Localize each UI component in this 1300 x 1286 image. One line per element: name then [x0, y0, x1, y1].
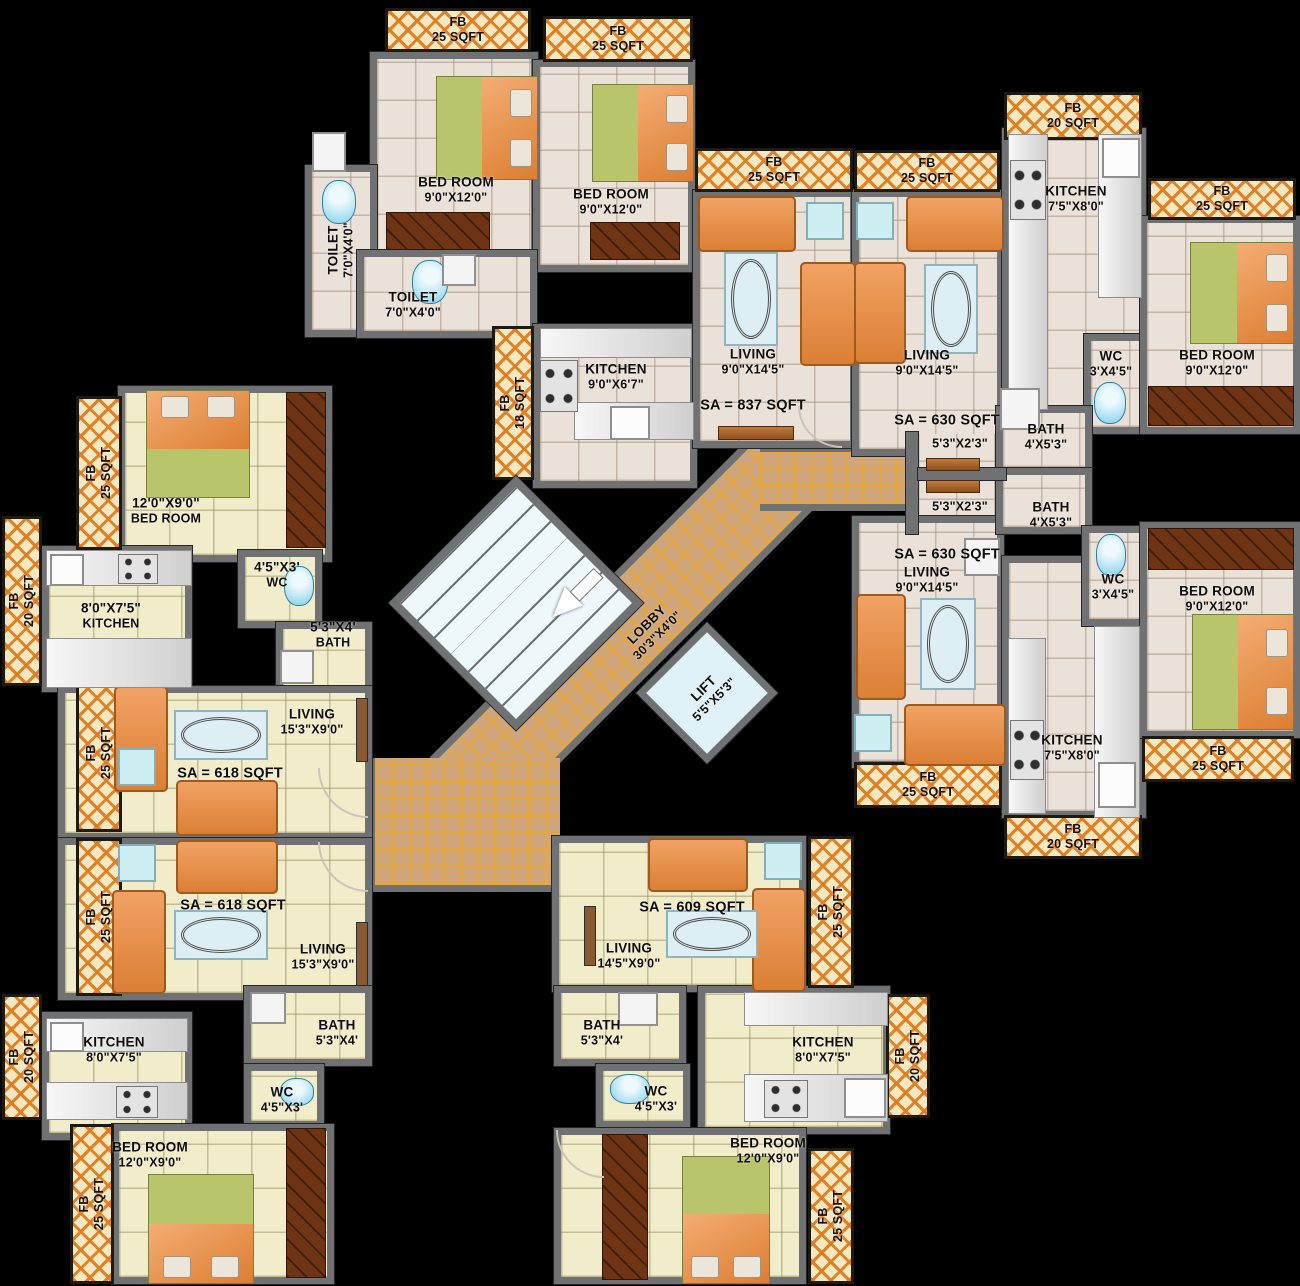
gas-stove-icon [1010, 720, 1044, 780]
label-sa-630-lower: SA = 630 SQFT [894, 546, 1000, 563]
label-passage-lower: 5'3"X2'3" [932, 500, 988, 515]
oval-rug [920, 598, 976, 690]
wardrobe [1148, 386, 1294, 426]
label-fb: FB25 SQFT [84, 727, 115, 779]
pillow [207, 396, 235, 418]
pillow [733, 1256, 761, 1278]
room-name: BATH [1032, 500, 1069, 515]
label-wc-d: WC4'5"X3' [635, 1084, 677, 1115]
label-fb: FB25 SQFT [432, 15, 484, 46]
label-fb: FB25 SQFT [816, 886, 847, 938]
pillow [1266, 629, 1288, 657]
side-table [118, 844, 156, 882]
fb-label: FB [893, 1047, 907, 1064]
room-dims: 8'0"X7'5" [792, 1051, 853, 1066]
passage-dims: 5'3"X2'3" [932, 500, 988, 514]
fb-label: FB [7, 1048, 21, 1065]
fb-label: FB [1213, 184, 1230, 198]
sa-value: SA = 618 SQFT [177, 765, 283, 781]
label-sa-618-lower: SA = 618 SQFT [180, 897, 286, 914]
double-bed [436, 76, 538, 180]
wash-basin-icon [280, 650, 314, 684]
sofa [906, 196, 1004, 252]
sofa [904, 704, 1006, 766]
label-kitchen-c: KITCHEN7'5"X8'0" [1041, 733, 1102, 764]
rug-oval [731, 259, 771, 339]
label-kitchen-d: KITCHEN8'0"X7'5" [792, 1035, 853, 1066]
room-dims: 7'0"X4'0" [385, 306, 441, 321]
room-dims: 9'0"X12'0" [573, 203, 649, 218]
side-table [854, 714, 892, 752]
kitchen-sink-icon [844, 1078, 886, 1118]
label-toilet-a2: TOILET7'0"X4'0" [385, 290, 441, 321]
pillow [161, 396, 189, 418]
label-fb: FB20 SQFT [1047, 101, 1099, 132]
label-living-b: LIVING9'0"X14'5" [896, 348, 959, 379]
fb-size: 25 SQFT [831, 886, 846, 938]
rug-oval [181, 917, 261, 953]
room-dims: 14'5"X9'0" [598, 957, 661, 972]
fb-size: 25 SQFT [99, 891, 114, 943]
label-fb: FB25 SQFT [816, 1190, 847, 1242]
fb-label: FB [919, 770, 936, 784]
label-bath-f: 5'3"X4'BATH [310, 620, 356, 651]
wardrobe [286, 1128, 326, 1278]
fb-label: FB [498, 394, 512, 411]
fb-label: FB [7, 592, 21, 609]
sa-value: SA = 630 SQFT [894, 412, 1000, 428]
fb-size: 20 SQFT [908, 1030, 923, 1082]
label-fb: FB25 SQFT [1196, 184, 1248, 215]
sofa [112, 890, 166, 994]
label-living-c: LIVING9'0"X14'5" [896, 565, 959, 596]
label-living-d: LIVING14'5"X9'0" [598, 941, 661, 972]
kitchen-counter [540, 328, 692, 358]
room-dims: 3'X4'5" [1092, 588, 1134, 603]
sofa [856, 594, 906, 700]
room-name: BED ROOM [1179, 348, 1255, 363]
double-bed [592, 84, 694, 182]
tv-unit [356, 922, 368, 986]
label-fb: FB20 SQFT [7, 1031, 38, 1083]
label-bath-b: BATH4'X5'3" [1025, 422, 1067, 453]
fb-label: FB [816, 1207, 830, 1224]
label-fb: FB20 SQFT [1047, 822, 1099, 853]
sa-value: SA = 618 SQFT [180, 897, 286, 913]
fb-label: FB [918, 156, 935, 170]
sofa [752, 888, 806, 992]
fb-size: 25 SQFT [432, 30, 484, 45]
tv-unit [584, 906, 596, 966]
side-table [856, 202, 894, 240]
label-fb: FB25 SQFT [748, 155, 800, 186]
wash-basin-icon [618, 992, 658, 1026]
fb-label: FB [84, 744, 98, 761]
room-dims: 9'0"X12'0" [418, 191, 494, 206]
label-fb: FB18 SQFT [498, 377, 529, 429]
side-table [118, 748, 156, 786]
room-name: KITCHEN [81, 617, 141, 632]
room-name: WC [1100, 349, 1123, 364]
room-dims: 9'0"X14'5" [896, 364, 959, 379]
label-passage-upper: 5'3"X2'3" [932, 437, 988, 452]
room-name: LIVING [904, 348, 950, 363]
fb-label: FB [84, 908, 98, 925]
room-dims: 7'5"X8'0" [1041, 749, 1102, 764]
gas-stove-icon [764, 1080, 808, 1118]
double-bed [1190, 242, 1294, 344]
room-name: KITCHEN [1041, 733, 1102, 748]
fb-label: FB [1064, 822, 1081, 836]
gas-stove-icon [540, 360, 578, 412]
room-dims: 9'0"X14'5" [896, 581, 959, 596]
kitchen-sink-icon [1102, 138, 1140, 178]
room-dims: 4'5"X3' [261, 1101, 303, 1116]
room-dims: 9'0"X6'7" [585, 378, 646, 393]
fb-size: 20 SQFT [1047, 116, 1099, 131]
room-name: LIVING [289, 707, 335, 722]
room-name: WC [254, 576, 300, 591]
dining-shelf [926, 458, 980, 471]
double-bed [1192, 614, 1294, 730]
fb-size: 20 SQFT [22, 1031, 37, 1083]
pillow [1266, 687, 1288, 715]
label-bedroom-a2: BED ROOM9'0"X12'0" [573, 187, 649, 218]
label-sa-618-upper: SA = 618 SQFT [177, 765, 283, 782]
fb-label: FB [449, 15, 466, 29]
double-bed [148, 1174, 254, 1284]
kitchen-counter [744, 992, 888, 1026]
room-name: KITCHEN [792, 1035, 853, 1050]
label-bedroom-f: 12'0"X9'0"BED ROOM [131, 496, 201, 527]
room-dims: 12'0"X9'0" [730, 1152, 806, 1167]
room-dims: 4'5"X3' [254, 560, 300, 575]
fb-size: 25 SQFT [1196, 199, 1248, 214]
label-fb: FB20 SQFT [7, 575, 38, 627]
pillow [510, 89, 532, 117]
fb-label: FB [609, 24, 626, 38]
passage-wall-vertical [906, 432, 918, 534]
room-dims: 3'X4'5" [1090, 365, 1132, 380]
room-name: BATH [583, 1018, 620, 1033]
room-dims: 4'X5'3" [1025, 438, 1067, 453]
label-kitchen-e: KITCHEN8'0"X7'5" [83, 1035, 144, 1066]
room-name: LIVING [730, 347, 776, 362]
label-kitchen-a: KITCHEN9'0"X6'7" [585, 362, 646, 393]
label-kitchen-f: 8'0"X7'5"KITCHEN [81, 601, 141, 632]
kitchen-counter [46, 638, 192, 688]
label-wc-f: 4'5"X3'WC [254, 560, 300, 591]
sofa [176, 780, 278, 836]
wardrobe [286, 392, 326, 548]
room-name: LIVING [606, 941, 652, 956]
pillow [510, 139, 532, 167]
pillow [666, 95, 688, 123]
label-kitchen-b: KITCHEN7'5"X8'0" [1045, 184, 1106, 215]
oval-rug [924, 264, 978, 354]
room-name: WC [1102, 572, 1125, 587]
console-shelf [718, 426, 794, 440]
label-sa-837: SA = 837 SQFT [700, 397, 806, 414]
floor-plan: BED ROOM9'0"X12'0" BED ROOM9'0"X12'0" TO… [0, 0, 1300, 1286]
oval-rug [666, 910, 758, 958]
room-name: BED ROOM [573, 187, 649, 202]
fb-size: 20 SQFT [22, 575, 37, 627]
room-name: KITCHEN [83, 1035, 144, 1050]
rug-oval [931, 271, 971, 347]
fb-label: FB [1209, 744, 1226, 758]
wardrobe [602, 1134, 648, 1280]
pillow [163, 1256, 191, 1278]
label-fb: FB25 SQFT [902, 770, 954, 801]
double-bed [146, 390, 250, 498]
room-name: BED ROOM [112, 1140, 188, 1155]
label-wc-c: WC3'X4'5" [1092, 572, 1134, 603]
room-dims: 7'5"X8'0" [1045, 200, 1106, 215]
toilet-pan-icon [322, 180, 356, 224]
fb-size: 25 SQFT [92, 1178, 107, 1230]
fb-label: FB [84, 464, 98, 481]
fb-label: FB [77, 1195, 91, 1212]
room-dims: 7'0"X4'0" [342, 222, 357, 278]
label-sa-630-upper: SA = 630 SQFT [894, 412, 1000, 429]
room-dims: 8'0"X7'5" [83, 1051, 144, 1066]
label-fb: FB25 SQFT [84, 891, 115, 943]
tv-unit [356, 698, 368, 762]
fb-size: 18 SQFT [513, 377, 528, 429]
fb-size: 25 SQFT [901, 171, 953, 186]
label-living-a: LIVING9'0"X14'5" [722, 347, 785, 378]
label-bedroom-d: BED ROOM12'0"X9'0" [730, 1136, 806, 1167]
fb-size: 25 SQFT [831, 1190, 846, 1242]
label-fb: FB20 SQFT [893, 1030, 924, 1082]
room-dims: 9'0"X12'0" [1179, 364, 1255, 379]
room-name: LIVING [904, 565, 950, 580]
room-dims: 5'3"X4' [581, 1034, 623, 1049]
fb-size: 20 SQFT [1047, 837, 1099, 852]
label-bath-c: BATH4'X5'3" [1030, 500, 1072, 531]
sofa [176, 840, 278, 894]
label-toilet-a1: TOILET7'0"X4'0" [326, 222, 357, 278]
pillow [1266, 304, 1288, 332]
sa-value: SA = 609 SQFT [639, 899, 745, 915]
sa-value: SA = 837 SQFT [700, 397, 806, 413]
label-wc-e: WC4'5"X3' [261, 1085, 303, 1116]
fb-label: FB [765, 155, 782, 169]
sofa [800, 262, 856, 366]
room-dims: 5'3"X4' [316, 1034, 358, 1049]
sofa [698, 196, 796, 252]
label-bedroom-a1: BED ROOM9'0"X12'0" [418, 175, 494, 206]
rug-oval [673, 917, 751, 951]
side-table [764, 842, 802, 880]
gas-stove-icon [1010, 160, 1046, 220]
room-name: BED ROOM [730, 1136, 806, 1151]
fb-size: 25 SQFT [902, 785, 954, 800]
sofa [648, 838, 748, 892]
room-name: TOILET [389, 290, 438, 305]
passage-dims: 5'3"X2'3" [932, 437, 988, 451]
label-bedroom-c: BED ROOM9'0"X12'0" [1179, 584, 1255, 615]
oval-rug [174, 710, 268, 760]
room-name: WC [645, 1084, 668, 1099]
wash-basin-icon [250, 992, 286, 1024]
room-dims: 8'0"X7'5" [81, 601, 141, 616]
toilet-pan-icon [1096, 534, 1126, 576]
label-bath-e: BATH5'3"X4' [316, 1018, 358, 1049]
fb-size: 25 SQFT [748, 170, 800, 185]
side-table [806, 202, 844, 240]
room-dims: 9'0"X14'5" [722, 363, 785, 378]
room-dims: 12'0"X9'0" [132, 496, 200, 511]
pillow [691, 1256, 719, 1278]
kitchen-sink-icon [50, 1022, 84, 1052]
pillow [211, 1256, 239, 1278]
room-name: BATH [310, 636, 356, 651]
room-dims: 9'0"X12'0" [1179, 600, 1255, 615]
label-fb: FB25 SQFT [1192, 744, 1244, 775]
pillow [666, 143, 688, 171]
label-bedroom-e: BED ROOM12'0"X9'0" [112, 1140, 188, 1171]
room-name: BATH [318, 1018, 355, 1033]
room-dims: 4'X5'3" [1030, 516, 1072, 531]
room-dims: 15'3"X9'0" [292, 958, 355, 973]
label-fb: FB25 SQFT [77, 1178, 108, 1230]
label-fb: FB25 SQFT [84, 447, 115, 499]
wardrobe [590, 222, 680, 260]
oval-rug [724, 252, 778, 346]
toilet-pan-icon [1094, 382, 1126, 424]
room-dims: 5'3"X4' [310, 620, 356, 635]
fb-label: FB [1064, 101, 1081, 115]
label-sa-609: SA = 609 SQFT [639, 899, 745, 916]
room-name: BED ROOM [131, 512, 201, 527]
room-name: KITCHEN [585, 362, 646, 377]
label-wc-b: WC3'X4'5" [1090, 349, 1132, 380]
wardrobe [1148, 528, 1294, 570]
fb-label: FB [816, 903, 830, 920]
kitchen-sink-icon [610, 406, 650, 440]
oval-rug [174, 910, 268, 960]
label-fb: FB25 SQFT [592, 24, 644, 55]
sa-value: SA = 630 SQFT [894, 546, 1000, 562]
room-name: BED ROOM [418, 175, 494, 190]
room-name: TOILET [326, 226, 341, 275]
gas-stove-icon [118, 554, 158, 584]
pillow [1266, 254, 1288, 282]
lobby-landing [368, 758, 560, 892]
label-bedroom-b: BED ROOM9'0"X12'0" [1179, 348, 1255, 379]
fb-size: 25 SQFT [592, 39, 644, 54]
label-fb: FB25 SQFT [901, 156, 953, 187]
kitchen-sink-icon [50, 554, 84, 586]
room-name: BATH [1027, 422, 1064, 437]
fb-size: 25 SQFT [1192, 759, 1244, 774]
dining-shelf [926, 480, 980, 493]
wash-basin-icon [312, 132, 346, 172]
wash-basin-icon [442, 254, 476, 286]
gas-stove-icon [116, 1086, 158, 1118]
label-bath-d: BATH5'3"X4' [581, 1018, 623, 1049]
room-dims: 4'5"X3' [635, 1100, 677, 1115]
rug-oval [927, 605, 969, 683]
label-living-f: LIVING15'3"X9'0" [281, 707, 344, 738]
room-dims: 12'0"X9'0" [112, 1156, 188, 1171]
room-name: WC [271, 1085, 294, 1100]
rug-oval [181, 717, 261, 753]
room-name: LIVING [300, 942, 346, 957]
room-name: KITCHEN [1045, 184, 1106, 199]
double-bed [682, 1156, 770, 1284]
wardrobe [386, 212, 490, 250]
label-living-e: LIVING15'3"X9'0" [292, 942, 355, 973]
fb-size: 25 SQFT [99, 447, 114, 499]
room-dims: 15'3"X9'0" [281, 723, 344, 738]
kitchen-sink-icon [1098, 762, 1136, 808]
fb-size: 25 SQFT [99, 727, 114, 779]
room-name: BED ROOM [1179, 584, 1255, 599]
